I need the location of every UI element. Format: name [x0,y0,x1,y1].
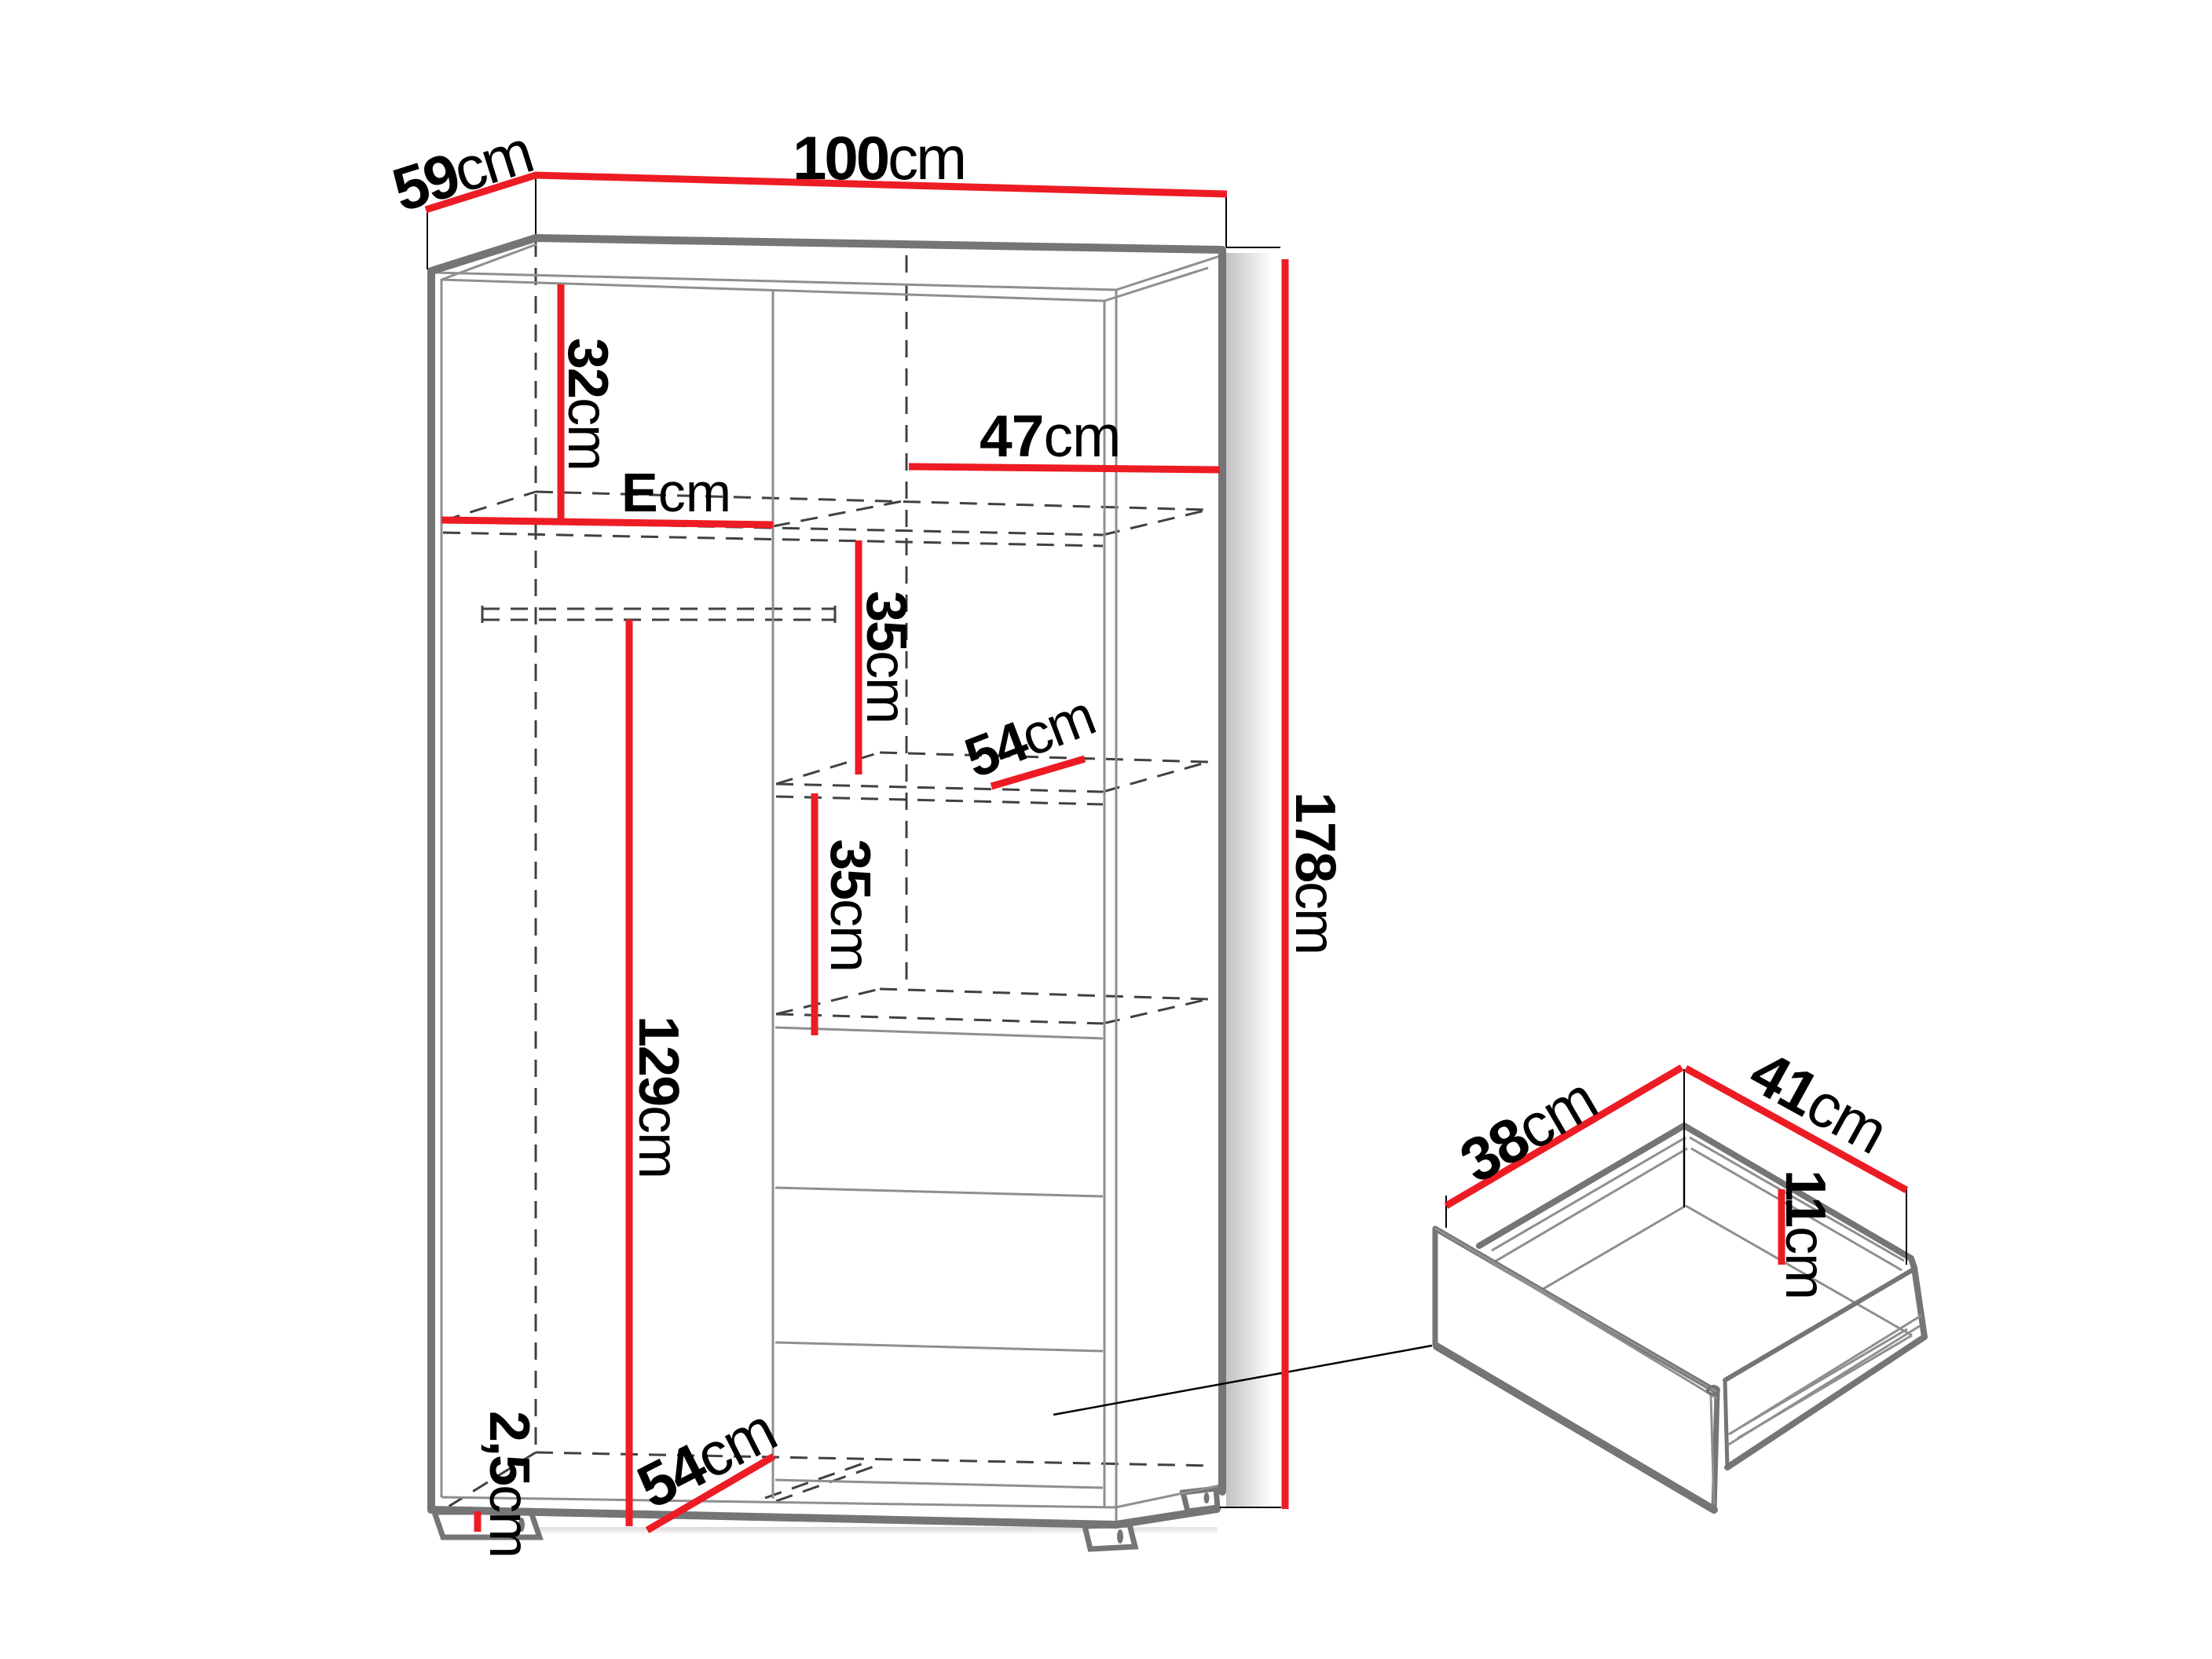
svg-text:Ecm: Ecm [621,462,731,523]
svg-text:100cm: 100cm [793,123,965,192]
svg-text:129cm: 129cm [627,1016,690,1177]
svg-text:11cm: 11cm [1774,1170,1837,1298]
svg-text:178cm: 178cm [1284,792,1346,954]
svg-text:35cm: 35cm [855,591,917,723]
svg-text:2,5cm: 2,5cm [478,1411,540,1557]
svg-text:32cm: 32cm [556,338,619,470]
svg-text:47cm: 47cm [980,403,1120,469]
svg-text:35cm: 35cm [819,839,881,971]
